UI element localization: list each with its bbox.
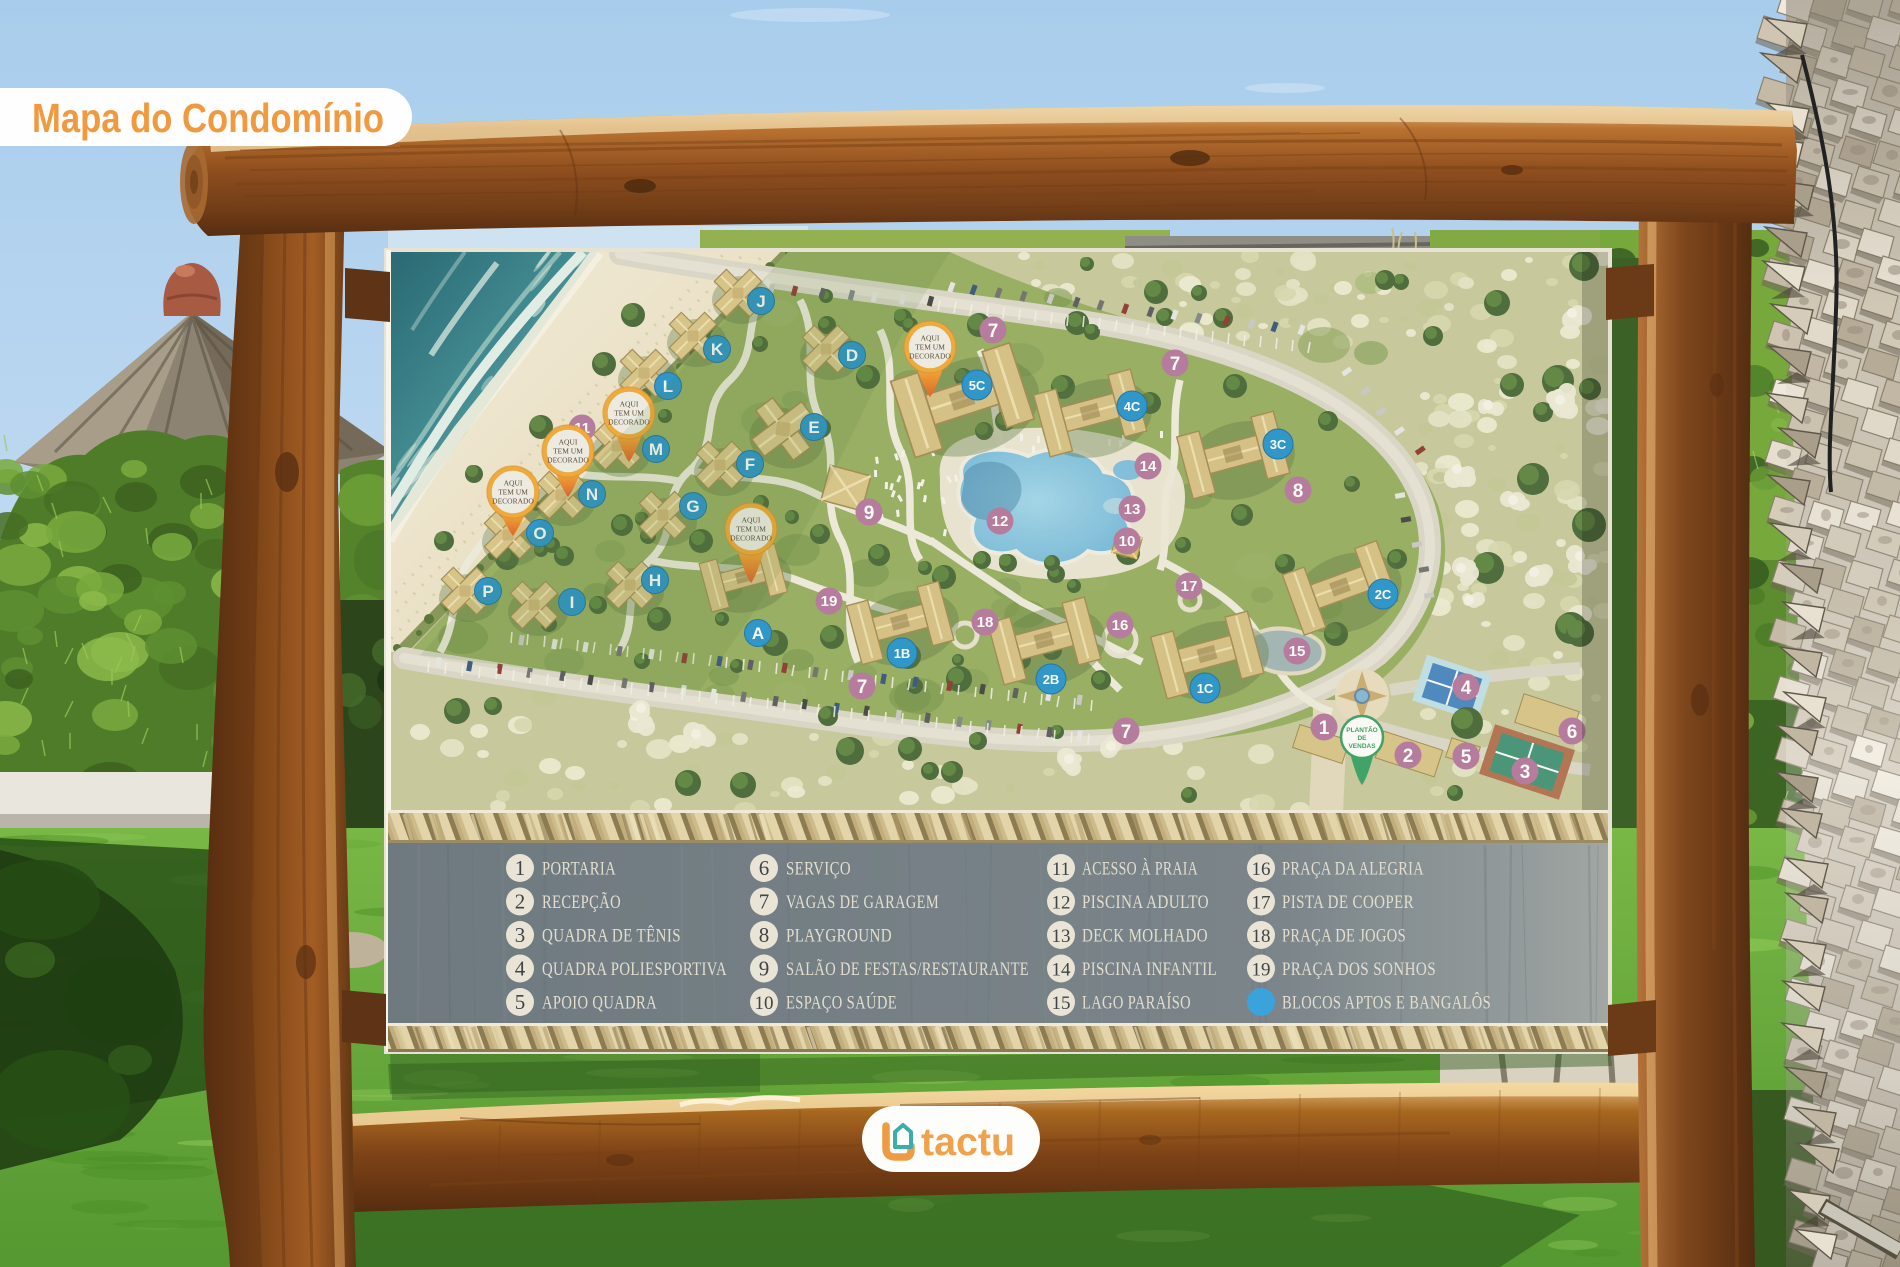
svg-text:3: 3 [515,923,526,947]
svg-text:PRAÇA DA ALEGRIA: PRAÇA DA ALEGRIA [1282,859,1424,880]
svg-text:SERVIÇO: SERVIÇO [786,859,851,880]
svg-text:8: 8 [759,923,770,947]
svg-text:18: 18 [1252,926,1271,947]
svg-text:LAGO PARAÍSO: LAGO PARAÍSO [1082,992,1191,1014]
svg-text:6: 6 [759,856,770,880]
svg-text:1: 1 [515,856,526,880]
svg-text:4: 4 [515,957,526,981]
svg-text:Mapa do Condomínio: Mapa do Condomínio [32,95,384,141]
svg-text:9: 9 [759,957,770,981]
svg-text:19: 19 [1252,960,1271,981]
svg-text:tactu: tactu [921,1121,1015,1164]
svg-text:2: 2 [515,890,526,914]
svg-text:PRAÇA DOS SONHOS: PRAÇA DOS SONHOS [1282,959,1436,980]
svg-text:BLOCOS APTOS E BANGALÔS: BLOCOS APTOS E BANGALÔS [1282,992,1491,1014]
svg-text:17: 17 [1252,893,1271,914]
svg-text:QUADRA POLIESPORTIVA: QUADRA POLIESPORTIVA [542,959,727,980]
svg-text:16: 16 [1252,859,1271,880]
svg-text:13: 13 [1052,926,1071,947]
svg-text:RECEPÇÃO: RECEPÇÃO [542,891,621,913]
svg-text:ESPAÇO SAÚDE: ESPAÇO SAÚDE [786,992,897,1014]
svg-text:QUADRA DE TÊNIS: QUADRA DE TÊNIS [542,925,681,947]
svg-text:PISCINA INFANTIL: PISCINA INFANTIL [1082,959,1217,980]
svg-text:SALÃO DE FESTAS/RESTAURANTE: SALÃO DE FESTAS/RESTAURANTE [786,958,1029,980]
svg-text:12: 12 [1052,893,1071,914]
svg-text:VAGAS DE GARAGEM: VAGAS DE GARAGEM [786,892,939,913]
svg-text:PISCINA ADULTO: PISCINA ADULTO [1082,892,1209,913]
svg-text:APOIO QUADRA: APOIO QUADRA [542,993,657,1014]
svg-text:5: 5 [515,990,526,1014]
svg-text:PISTA DE COOPER: PISTA DE COOPER [1282,892,1414,913]
svg-text:PORTARIA: PORTARIA [542,859,616,880]
svg-text:PRAÇA DE JOGOS: PRAÇA DE JOGOS [1282,926,1406,947]
svg-text:10: 10 [755,993,774,1014]
svg-text:ACESSO À PRAIA: ACESSO À PRAIA [1082,858,1198,880]
svg-text:14: 14 [1052,960,1072,981]
svg-text:15: 15 [1052,993,1071,1014]
svg-text:7: 7 [759,890,770,914]
svg-text:DECK MOLHADO: DECK MOLHADO [1082,926,1208,947]
svg-text:PLAYGROUND: PLAYGROUND [786,926,892,947]
svg-text:11: 11 [1052,859,1070,880]
